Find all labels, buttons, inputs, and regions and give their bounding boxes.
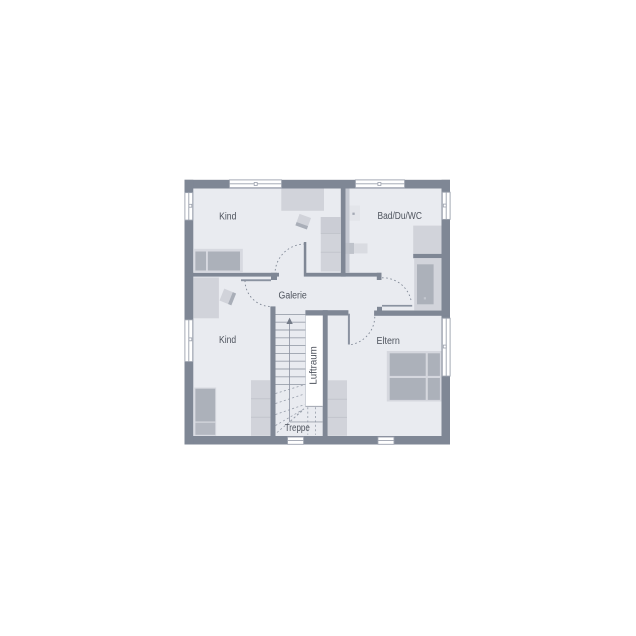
svg-text:Eltern: Eltern [377, 336, 400, 347]
svg-text:Treppe: Treppe [285, 423, 311, 434]
svg-text:Luftraum: Luftraum [308, 346, 319, 384]
svg-text:Bad/Du/WC: Bad/Du/WC [378, 211, 422, 222]
svg-text:Kind: Kind [219, 212, 236, 223]
svg-text:Galerie: Galerie [279, 291, 308, 302]
svg-text:Kind: Kind [219, 335, 236, 346]
